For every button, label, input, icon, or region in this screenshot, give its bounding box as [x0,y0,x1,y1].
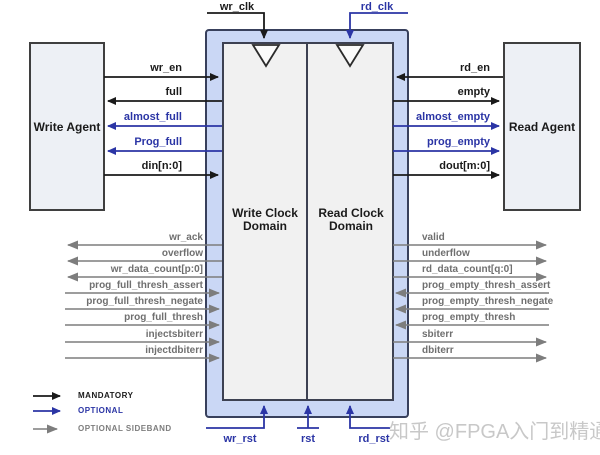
prog-empty-thresh-assert-label: prog_empty_thresh_assert [422,280,550,291]
wr-en-label: wr_en [150,62,182,74]
almost-empty-label: almost_empty [416,111,490,123]
fifo-block-diagram: Write Agent Read Agent Write Clock Domai… [0,0,600,455]
injectdbiterr-label: injectdbiterr [145,345,203,356]
prog-empty-label: prog_empty [427,136,490,148]
din-label: din[n:0] [142,160,182,172]
empty-label: empty [458,86,490,98]
wr-data-count-label: wr_data_count[p:0] [111,264,203,275]
read-agent-box: Read Agent [503,42,581,211]
legend-mandatory-label: MANDATORY [78,391,133,400]
injectsbiterr-label: injectsbiterr [146,329,203,340]
full-label: full [166,86,183,98]
wr-clk-label: wr_clk [220,1,254,13]
overflow-label: overflow [162,248,203,259]
prog-full-thresh-assert-label: prog_full_thresh_assert [89,280,203,291]
almost-full-label: almost_full [124,111,182,123]
legend-optional-label: OPTIONAL [78,406,123,415]
prog-empty-thresh-label: prog_empty_thresh [422,312,515,323]
prog-full-thresh-label: prog_full_thresh [124,312,203,323]
rd-clk-label: rd_clk [361,1,393,13]
rd-data-count-label: rd_data_count[q:0] [422,264,513,275]
read-clock-domain-label: Read Clock Domain [311,207,391,233]
clock-domain-divider [306,42,308,401]
rd-rst-label: rd_rst [358,433,389,445]
prog-full-thresh-negate-label: prog_full_thresh_negate [86,296,203,307]
sbiterr-label: sbiterr [422,329,453,340]
valid-label: valid [422,232,445,243]
rd-en-label: rd_en [460,62,490,74]
prog-empty-thresh-negate-label: prog_empty_thresh_negate [422,296,553,307]
prog-full-label: Prog_full [134,136,182,148]
legend-sideband-label: OPTIONAL SIDEBAND [78,424,172,433]
watermark-text: 知乎 @FPGA入门到精通 [389,415,600,444]
write-agent-box: Write Agent [29,42,105,211]
write-clock-domain-label: Write Clock Domain [225,207,305,233]
dout-label: dout[m:0] [439,160,490,172]
rst-label: rst [301,433,315,445]
wr-ack-label: wr_ack [169,232,203,243]
dbiterr-label: dbiterr [422,345,454,356]
underflow-label: underflow [422,248,470,259]
wr-rst-label: wr_rst [223,433,256,445]
